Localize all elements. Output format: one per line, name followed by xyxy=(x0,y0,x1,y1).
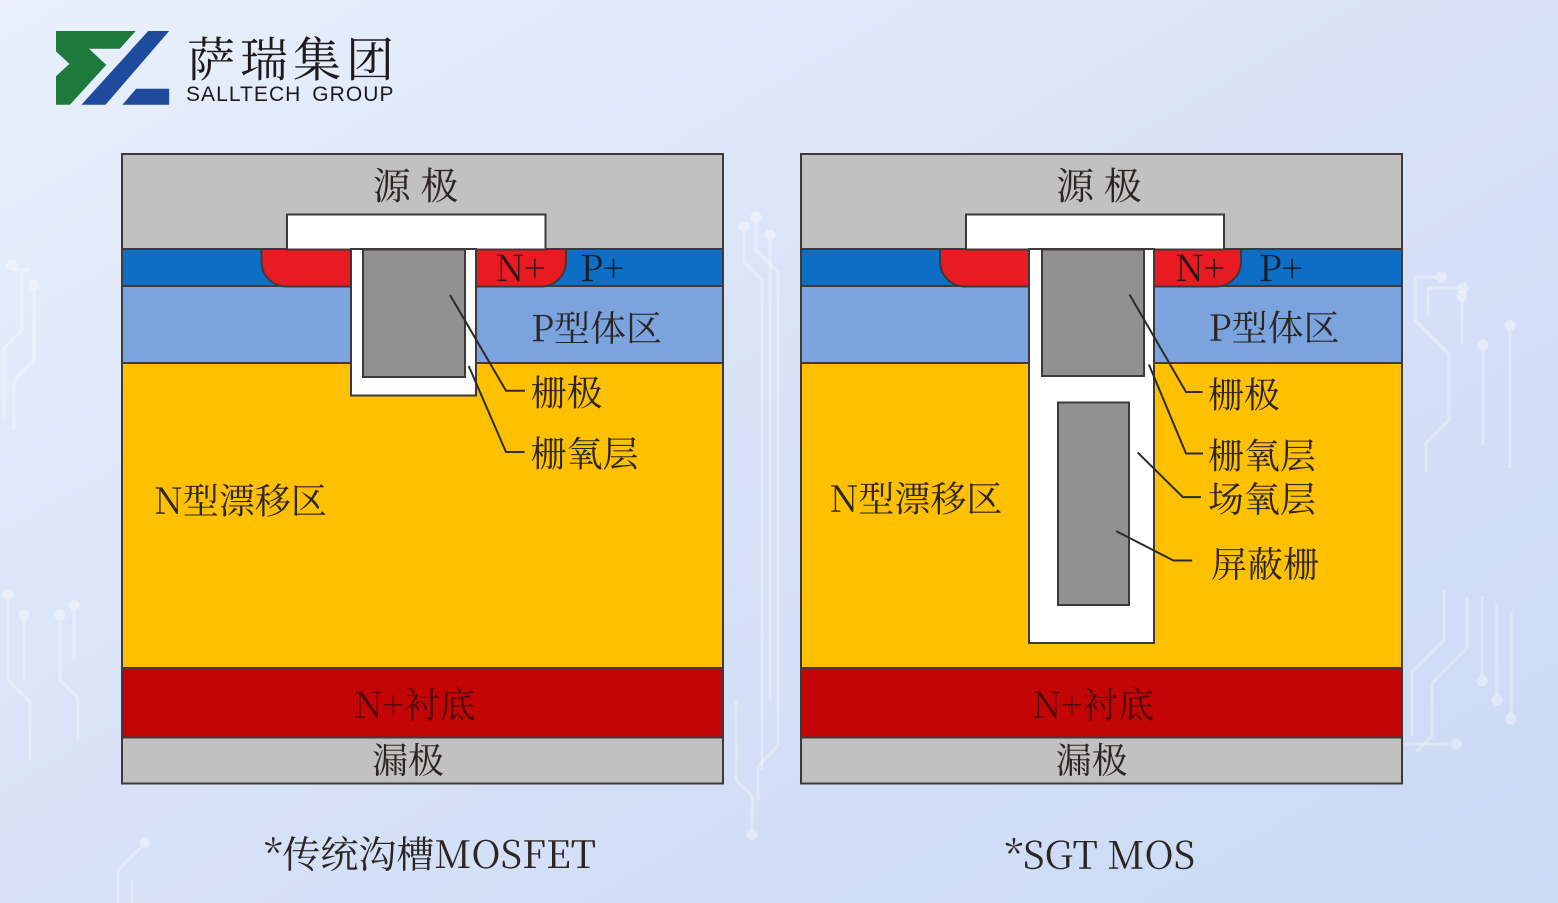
svg-text:SALLTECH GROUP: SALLTECH GROUP xyxy=(186,83,395,106)
